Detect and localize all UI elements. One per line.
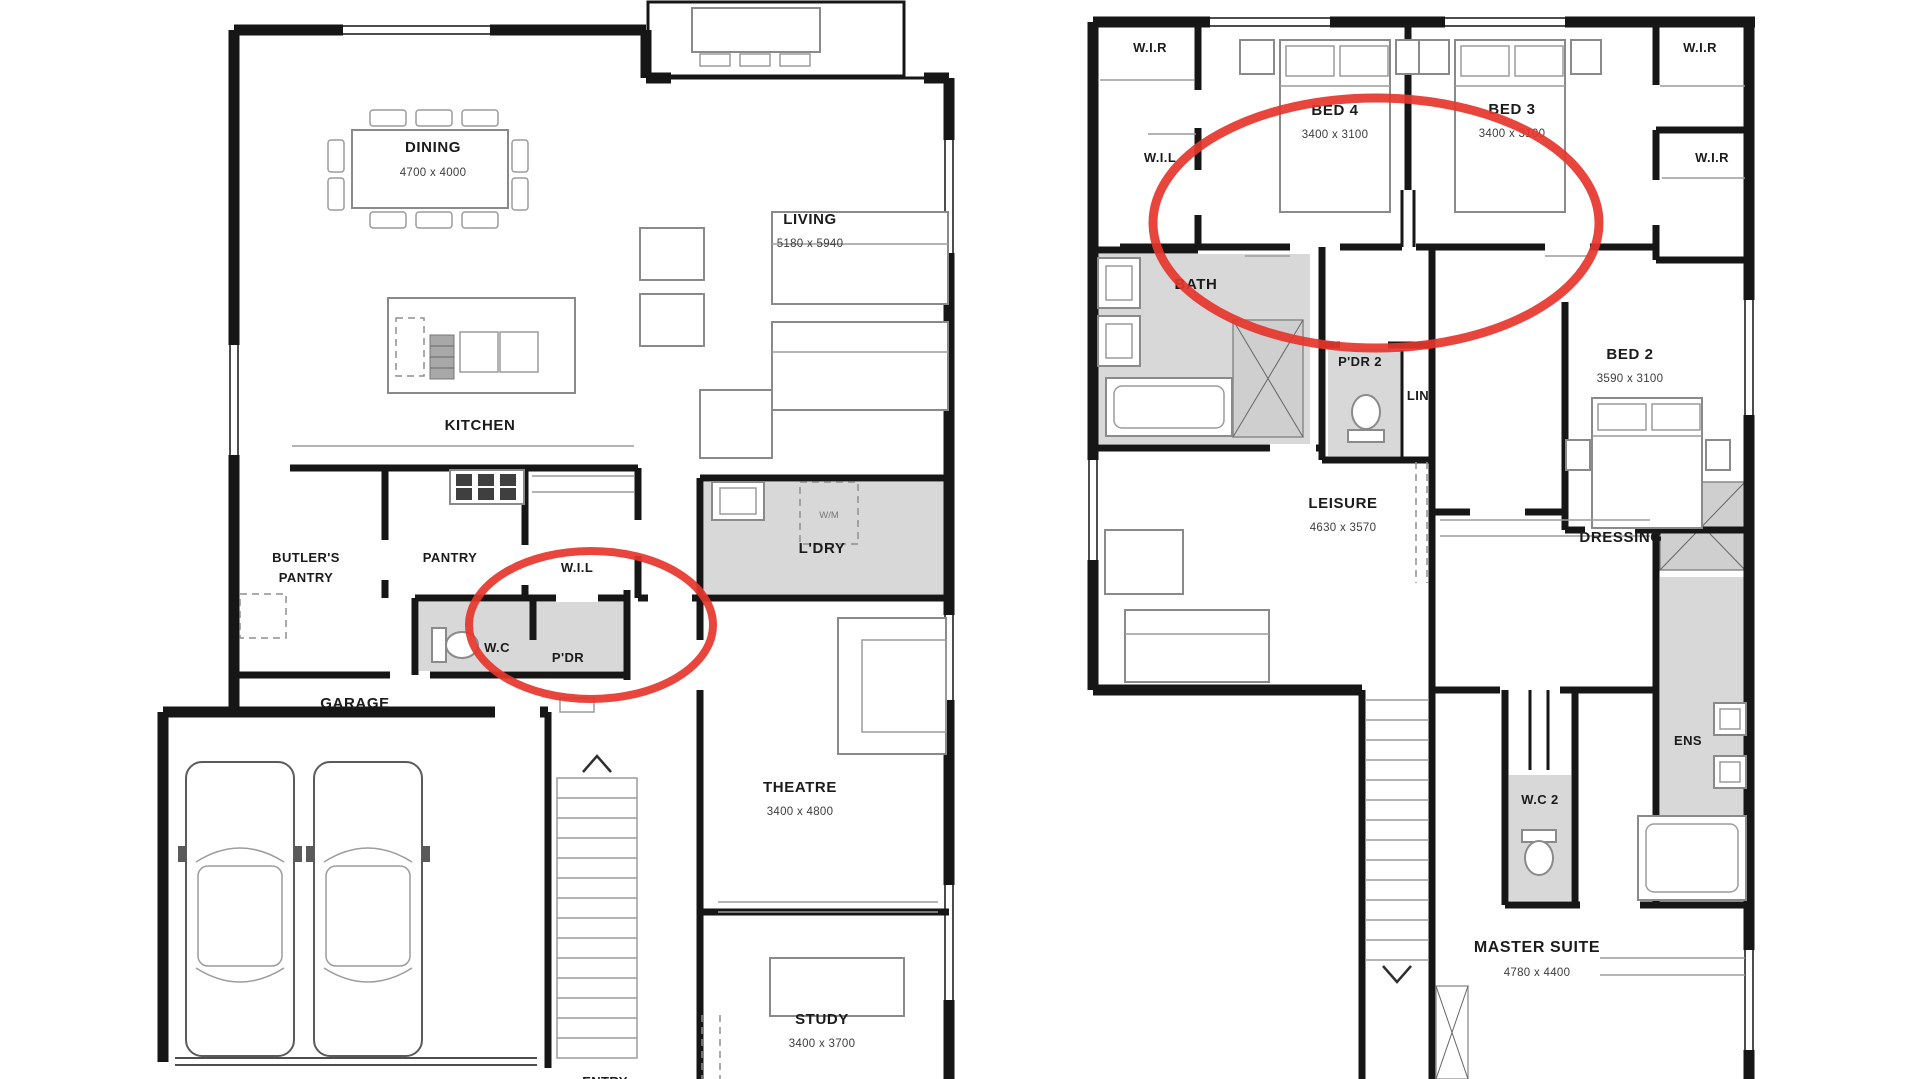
room-label-kitchen: KITCHEN	[445, 417, 516, 434]
room-dims-master-suite: 4780 x 4400	[1504, 967, 1571, 979]
room-label-wil: W.I.L	[561, 560, 593, 575]
room-dims-bed4: 3400 x 3100	[1302, 129, 1369, 141]
room-label-butlers-pantry-line1: BUTLER'S	[272, 550, 340, 565]
room-label-ldry: L'DRY	[799, 540, 846, 557]
room-label-wir-top-right: W.I.R	[1683, 40, 1717, 55]
floor-plan-image: DINING 4700 x 4000 LIVING 5180 x 5940 KI…	[0, 0, 1920, 1079]
leisure-furniture	[1105, 530, 1269, 682]
appliance-label-wm: W/M	[819, 510, 839, 521]
room-label-dining: DINING	[405, 139, 461, 156]
room-label-study: STUDY	[795, 1011, 849, 1028]
room-label-wil-first: W.I.L	[1144, 150, 1176, 165]
bed4-furniture	[1240, 40, 1426, 212]
alfresco	[648, 2, 904, 76]
room-label-bed2: BED 2	[1606, 346, 1653, 363]
room-dims-bed2: 3590 x 3100	[1597, 373, 1664, 385]
room-label-master-suite: MASTER SUITE	[1474, 939, 1600, 956]
room-dims-leisure: 4630 x 3570	[1310, 522, 1377, 534]
master-suite-fittings	[1436, 958, 1745, 1079]
room-label-wir-top-left: W.I.R	[1133, 40, 1167, 55]
room-label-butlers-pantry-line2: PANTRY	[279, 570, 333, 585]
room-label-ens: ENS	[1674, 733, 1702, 748]
first-floor-plan: W.I.R W.I.R W.I.L W.I.R BED 4 3400 x 310…	[1089, 18, 1755, 1079]
room-label-theatre: THEATRE	[763, 779, 837, 796]
room-label-wc2: W.C 2	[1521, 792, 1558, 807]
room-label-pantry: PANTRY	[423, 550, 477, 565]
cooktop	[450, 470, 524, 504]
room-label-leisure: LEISURE	[1308, 495, 1377, 512]
theatre-furniture	[718, 618, 946, 912]
room-label-lin: LIN	[1407, 388, 1429, 403]
room-dims-theatre: 3400 x 4800	[767, 806, 834, 818]
room-dims-study: 3400 x 3700	[789, 1038, 856, 1050]
room-label-living: LIVING	[783, 211, 837, 228]
room-dims-living: 5180 x 5940	[777, 238, 844, 250]
room-label-pdr2: P'DR 2	[1338, 354, 1382, 369]
room-label-wir-right: W.I.R	[1695, 150, 1729, 165]
room-label-entry: ENTRY	[582, 1074, 628, 1079]
staircase-ground	[557, 756, 720, 1079]
room-dims-dining: 4700 x 4000	[400, 167, 467, 179]
garage-cars	[178, 762, 430, 1056]
room-label-pdr: P'DR	[552, 650, 584, 665]
study-desk	[770, 958, 904, 1016]
room-label-dressing: DRESSING	[1579, 529, 1662, 546]
staircase-first	[1365, 700, 1429, 982]
room-label-wc: W.C	[484, 640, 510, 655]
wc2-toilet	[1522, 830, 1556, 875]
room-label-garage: GARAGE	[320, 695, 389, 712]
ground-floor-plan: DINING 4700 x 4000 LIVING 5180 x 5940 KI…	[163, 2, 953, 1079]
